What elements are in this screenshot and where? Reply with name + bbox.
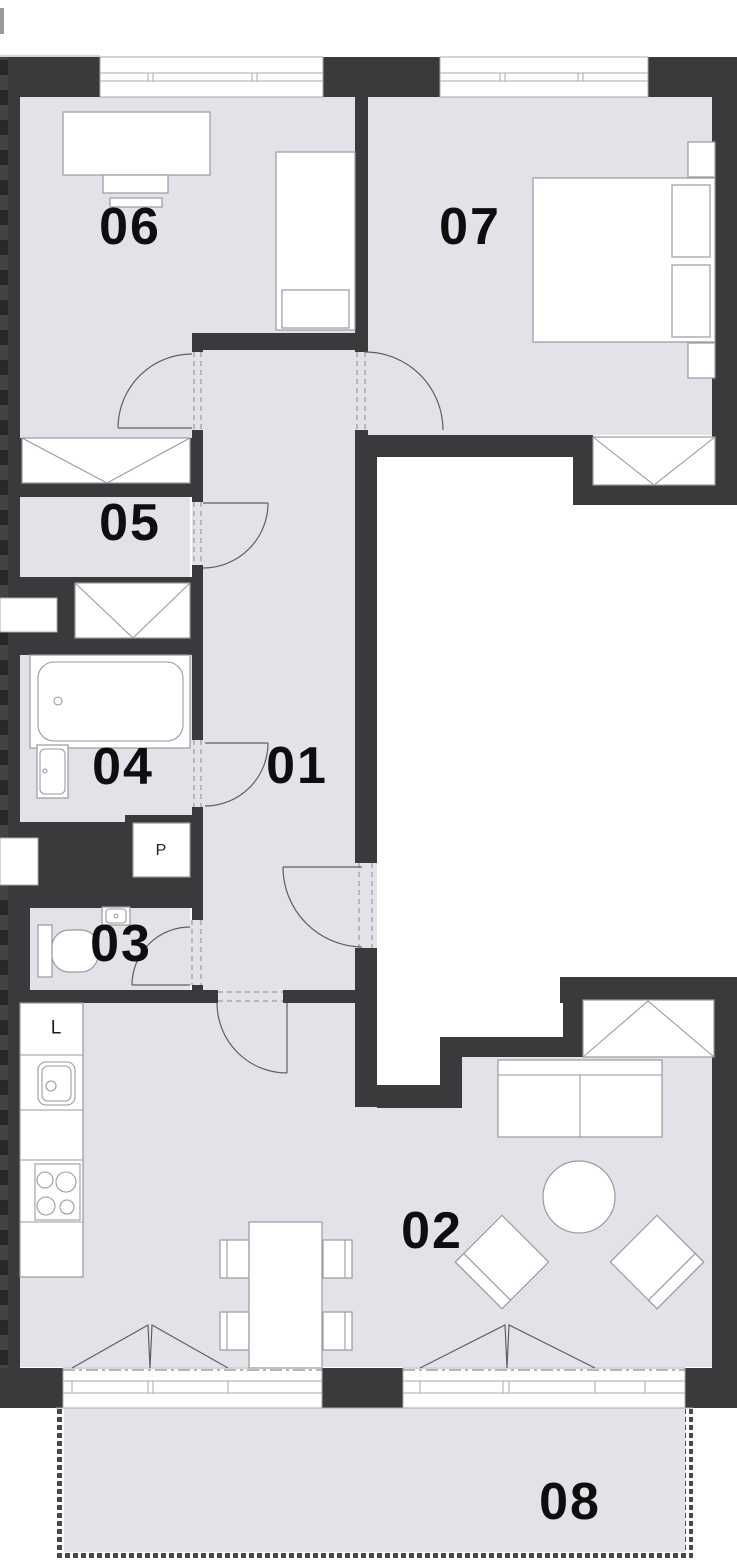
kitchen [20,1003,83,1277]
wall-recess-left-1 [0,598,57,632]
wall-corridor-top [192,333,368,350]
fridge-label: L [51,1019,62,1038]
wall-06-07-divider [355,57,368,350]
wall-void-step-low [377,1085,440,1108]
neighbor-wall-mark [0,8,4,34]
nightstand-1 [688,142,715,177]
wardrobe-02 [583,1000,714,1057]
room-label-05: 05 [99,497,161,549]
window-06 [100,57,323,97]
dining-chair-4 [323,1312,352,1350]
wardrobe-06 [22,438,190,483]
room-label-02: 02 [401,1205,463,1257]
room-label-08: 08 [539,1476,601,1528]
kitchen-counter [20,1003,83,1277]
toilet-tank [38,925,52,977]
bathroom-sink [37,745,68,798]
window-07 [440,57,648,97]
double-bed-pillow-1 [672,185,710,257]
room-label-01: 01 [266,740,328,792]
wardrobe-05 [75,583,190,638]
dining-chair-3 [323,1240,352,1278]
wall-07-bottom [365,435,593,457]
floor-plan: 01 02 03 04 05 06 07 08 P L [0,0,737,1567]
washing-machine-label: P [156,843,167,859]
desk-chair [103,175,168,193]
terrace-railing-left [56,1408,64,1560]
wall-void-step-mid [440,1037,563,1057]
coffee-table [543,1161,615,1233]
room-label-06: 06 [99,201,161,253]
wall-void-step-vert [440,1057,462,1108]
wall-kitchen-top [0,990,355,1003]
room-label-03: 03 [90,918,152,970]
dining-table [249,1222,322,1368]
wall-02-top-right [560,977,737,1000]
terrace-railing-right [685,1408,693,1560]
dining-chair-2 [220,1312,249,1350]
wall-02-wardrobe-side [560,1000,583,1057]
wardrobe-07 [593,437,715,485]
single-bed-pillow [282,290,349,328]
wall-07-wardrobe-bottom [592,483,715,505]
room-label-04: 04 [92,741,154,793]
wall-right-upper [712,57,737,505]
double-bed-pillow-2 [672,265,710,337]
dining-chair-1 [220,1240,249,1278]
wall-right-lower [712,997,737,1368]
wall-recess-left-2 [0,838,38,885]
nightstand-2 [688,343,715,378]
wall-corridor-right-exterior [355,457,377,1107]
door-gap-entrance [355,863,377,948]
desk [63,112,210,175]
room-label-07: 07 [439,201,501,253]
void-strip-mid [440,1003,563,1037]
wall-left-hatch [0,57,8,1368]
room-01-floor [203,350,355,990]
void-strip-left [377,1003,440,1085]
terrace-railing-bottom [56,1552,693,1560]
wall-07-wardrobe-side [573,437,593,505]
